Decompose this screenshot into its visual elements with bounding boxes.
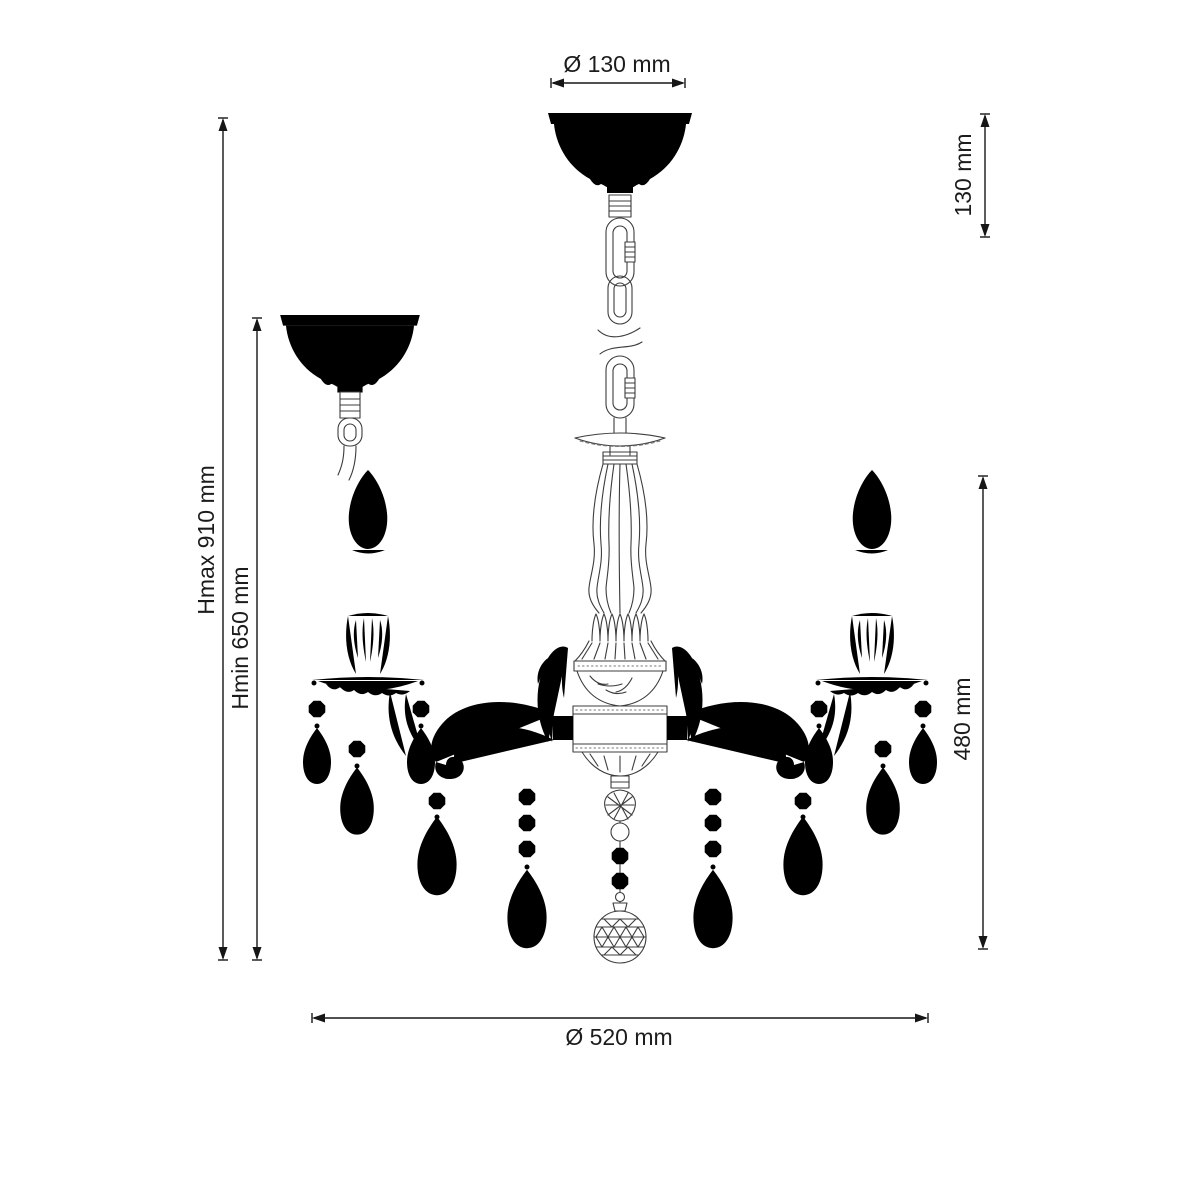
right-arm-candle	[667, 470, 937, 948]
left-arm-candle	[303, 470, 573, 948]
suspension-chain	[598, 218, 642, 433]
technical-drawing-svg	[0, 0, 1200, 1200]
chandelier-dimension-diagram: Ø 130 mm 130 mm Hmax 910 mm Hmin 650 mm …	[0, 0, 1200, 1200]
canopy-hmin-view	[280, 315, 420, 480]
central-hub	[573, 706, 667, 788]
center-column	[574, 433, 666, 706]
bottom-ball-crystal	[594, 790, 646, 963]
ceiling-canopy	[548, 113, 692, 217]
dim-label-fixture-diameter: Ø 520 mm	[565, 1024, 672, 1050]
dim-label-top-diameter: Ø 130 mm	[563, 51, 670, 77]
dim-label-height-min: Hmin 650 mm	[227, 566, 253, 709]
dim-label-height-max: Hmax 910 mm	[193, 465, 219, 615]
dim-label-canopy-height: 130 mm	[950, 133, 976, 216]
chandelier-drawing	[280, 113, 937, 963]
dim-label-fixture-height: 480 mm	[949, 677, 975, 760]
